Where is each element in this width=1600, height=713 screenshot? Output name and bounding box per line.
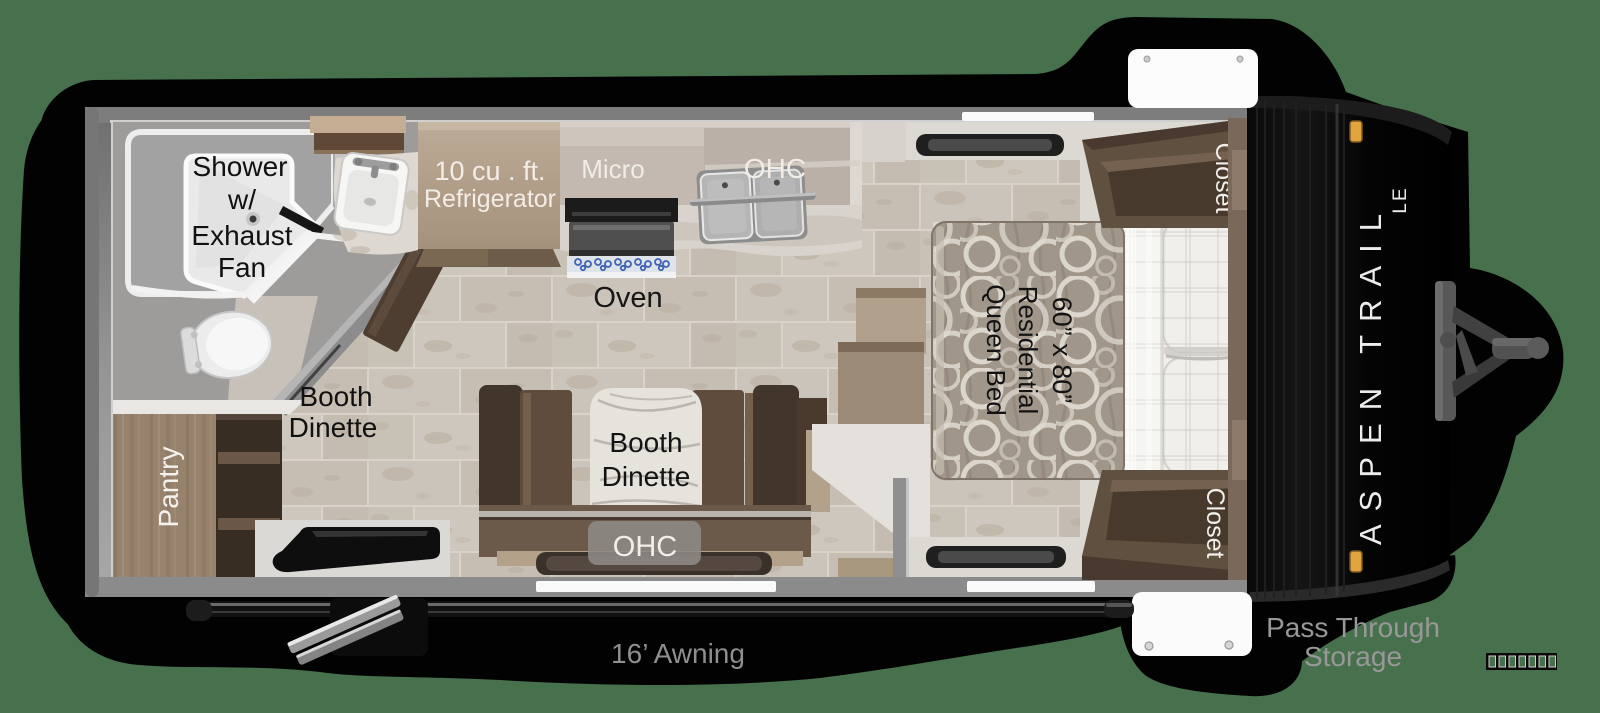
- svg-text:Dinette: Dinette: [602, 461, 691, 492]
- svg-text:Exhaust: Exhaust: [191, 220, 292, 251]
- svg-text:LE: LE: [1390, 186, 1411, 213]
- svg-text:Residential: Residential: [1013, 286, 1043, 415]
- svg-text:w/: w/: [227, 184, 256, 215]
- svg-text:Dinette: Dinette: [289, 412, 378, 443]
- svg-text:Pass Through: Pass Through: [1266, 612, 1440, 643]
- svg-text:Shower: Shower: [193, 151, 288, 182]
- svg-text:OHC: OHC: [744, 153, 806, 184]
- svg-text:60” x 80”: 60” x 80”: [1047, 297, 1077, 404]
- svg-text:10 cu . ft.: 10 cu . ft.: [434, 156, 545, 186]
- svg-text:Pantry: Pantry: [153, 447, 184, 528]
- svg-text:Oven: Oven: [593, 282, 662, 314]
- svg-text:Booth: Booth: [299, 381, 372, 412]
- svg-text:Fan: Fan: [218, 252, 266, 283]
- svg-text:Queen Bed: Queen Bed: [981, 284, 1011, 416]
- svg-text:Booth: Booth: [609, 427, 682, 458]
- svg-text:Micro: Micro: [581, 154, 645, 184]
- svg-text:ASPEN TRAIL: ASPEN TRAIL: [1353, 201, 1388, 545]
- svg-text:16’ Awning: 16’ Awning: [611, 638, 745, 669]
- svg-text:Refrigerator: Refrigerator: [424, 185, 556, 213]
- svg-text:OHC: OHC: [613, 531, 677, 563]
- svg-text:Storage: Storage: [1304, 641, 1402, 672]
- svg-text:Closet: Closet: [1201, 488, 1229, 559]
